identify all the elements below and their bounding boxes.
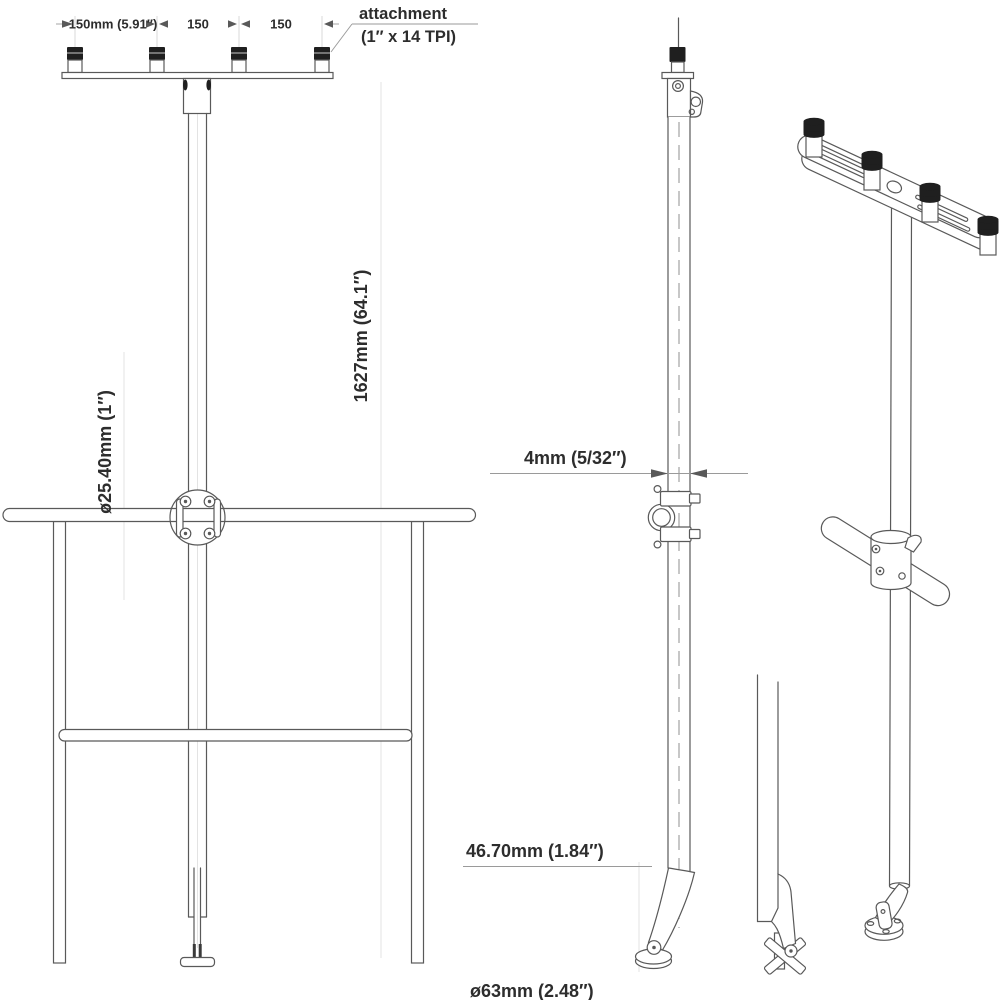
dim-label-pole-diameter: ø25.40mm (1″) [95,390,115,514]
head-bolt [673,81,684,92]
dim-label-base-diameter: ø63mm (2.48″) [470,981,594,1000]
rail-mid-bar [59,730,412,742]
dim-label-wall-thickness: 4mm (5/32″) [524,448,627,468]
foot-detail-view [758,675,807,975]
rod-post-3d [804,118,825,157]
head-flange [662,73,694,79]
pole-fragment [758,675,779,922]
base-offset-dimension: 46.70mm (1.84″) [463,841,652,867]
side-view: 4mm (5/32″) 46.70mm (1.84″) ø63mm [463,18,748,1000]
rod-post [149,47,165,73]
rod-post [314,47,330,73]
rod-post-3d [978,216,999,255]
drawing-svg: 150mm (5.91″) 150 150 [0,0,1000,1000]
clamp-nut [654,541,661,548]
collar-bolt [183,80,188,91]
attachment-note-line2: (1″ x 14 TPI) [361,28,456,46]
clamp-bolt-head [690,494,701,503]
pole-collar [183,79,211,114]
rod-post [67,47,83,73]
swivel-foot-3d [865,884,908,940]
dim-label-post-spacing-2: 150 [187,17,209,32]
front-view: 150mm (5.91″) 150 150 [3,16,639,972]
foot-screw [199,944,202,958]
note-leader-line [331,24,352,52]
clamp-bolt [180,496,191,507]
post-spacing-dimension: 150mm (5.91″) 150 150 [56,17,339,32]
attachment-note: attachment (1″ x 14 TPI) [331,5,478,52]
perspective-view [794,118,999,941]
rod-holder-posts [67,47,330,73]
rod-post-3d [862,151,883,190]
clamp-bolt [204,496,215,507]
clamp-bolt [204,528,215,539]
rod-post [231,47,247,73]
wall-thickness-dimension: 4mm (5/32″) [490,448,748,478]
rail-clamp-side [648,486,700,548]
swivel-foot-side [636,868,695,969]
attachment-cap [670,47,686,62]
clamp-bolt [899,573,905,579]
dim-label-pole-length: 1627mm (64.1″) [351,270,371,403]
rod-post-3d [920,183,941,222]
pole-head-fitting [662,18,703,117]
foot-base [181,958,215,967]
clamp-bolt [876,567,884,575]
foot-bracket-fin [649,868,695,950]
dim-label-base-offset: 46.70mm (1.84″) [466,841,604,861]
clamp-slot [214,499,221,537]
clamp-bolt [180,528,191,539]
clamp-bolt [872,545,880,553]
technical-drawing-canvas: 150mm (5.91″) 150 150 [0,0,1000,1000]
clamp-nut [654,486,661,493]
spreader-plate [62,73,333,79]
dim-label-post-spacing-1: 150mm (5.91″) [69,17,158,32]
rail-clamp-plate [170,490,225,545]
foot-screw [193,944,196,958]
rail-leg-right [412,522,424,964]
collar-bolt [206,80,211,91]
rail-top-tube [3,509,476,522]
clamp-bolt-head [690,530,701,539]
dim-label-post-spacing-3: 150 [270,17,292,32]
rail-leg-left [54,522,66,964]
attachment-note-line1: attachment [359,5,448,23]
